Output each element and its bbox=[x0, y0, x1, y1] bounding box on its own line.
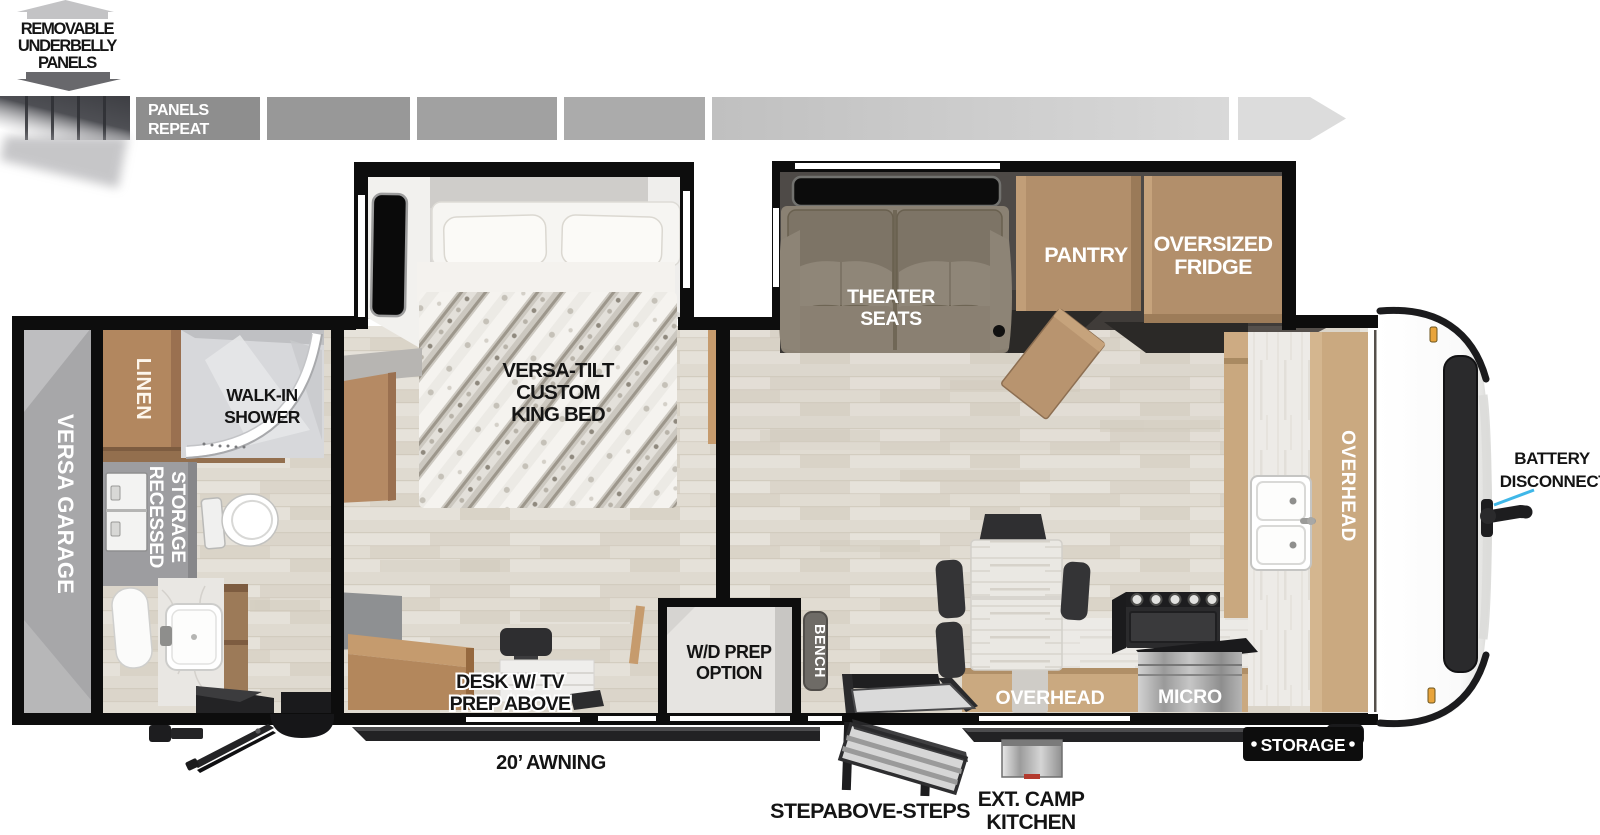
svg-text:MICRO: MICRO bbox=[1158, 686, 1222, 708]
svg-text:OVERSIZED: OVERSIZED bbox=[1154, 232, 1273, 256]
svg-text:OVERHEAD: OVERHEAD bbox=[996, 687, 1105, 709]
svg-text:W/D PREP: W/D PREP bbox=[686, 642, 772, 662]
svg-text:STORAGE: STORAGE bbox=[1261, 735, 1346, 755]
svg-text:WALK-IN: WALK-IN bbox=[226, 385, 297, 405]
svg-text:KING BED: KING BED bbox=[511, 403, 605, 426]
svg-text:CUSTOM: CUSTOM bbox=[516, 381, 600, 404]
svg-text:PANELS: PANELS bbox=[38, 54, 97, 72]
svg-text:VERSA GARAGE: VERSA GARAGE bbox=[53, 414, 78, 594]
svg-text:PANELS: PANELS bbox=[148, 102, 210, 119]
svg-text:UNDERBELLY: UNDERBELLY bbox=[18, 37, 118, 55]
svg-text:LINEN: LINEN bbox=[132, 358, 154, 421]
svg-text:OPTION: OPTION bbox=[696, 663, 762, 683]
svg-text:RECESSED: RECESSED bbox=[145, 466, 166, 568]
svg-text:THEATER: THEATER bbox=[847, 286, 935, 308]
svg-text:STORAGE: STORAGE bbox=[167, 471, 188, 563]
svg-text:DISCONNECT: DISCONNECT bbox=[1500, 472, 1600, 491]
svg-text:SEATS: SEATS bbox=[860, 308, 922, 330]
svg-text:FRIDGE: FRIDGE bbox=[1174, 255, 1252, 279]
svg-text:STEPABOVE-STEPS: STEPABOVE-STEPS bbox=[770, 799, 970, 823]
svg-text:EXT. CAMP: EXT. CAMP bbox=[978, 788, 1085, 811]
svg-text:KITCHEN: KITCHEN bbox=[986, 811, 1075, 830]
svg-text:REMOVABLE: REMOVABLE bbox=[21, 20, 115, 38]
svg-text:VERSA-TILT: VERSA-TILT bbox=[502, 359, 614, 382]
svg-text:BATTERY: BATTERY bbox=[1514, 449, 1591, 468]
svg-text:SHOWER: SHOWER bbox=[224, 407, 301, 427]
svg-text:OVERHEAD: OVERHEAD bbox=[1337, 430, 1358, 542]
svg-text:20’ AWNING: 20’ AWNING bbox=[496, 752, 606, 774]
svg-text:DESK W/ TV: DESK W/ TV bbox=[456, 671, 564, 693]
svg-text:PANTRY: PANTRY bbox=[1044, 243, 1128, 267]
svg-text:BENCH: BENCH bbox=[811, 624, 827, 678]
svg-text:REPEAT: REPEAT bbox=[148, 121, 209, 138]
svg-text:PREP ABOVE: PREP ABOVE bbox=[450, 693, 571, 715]
